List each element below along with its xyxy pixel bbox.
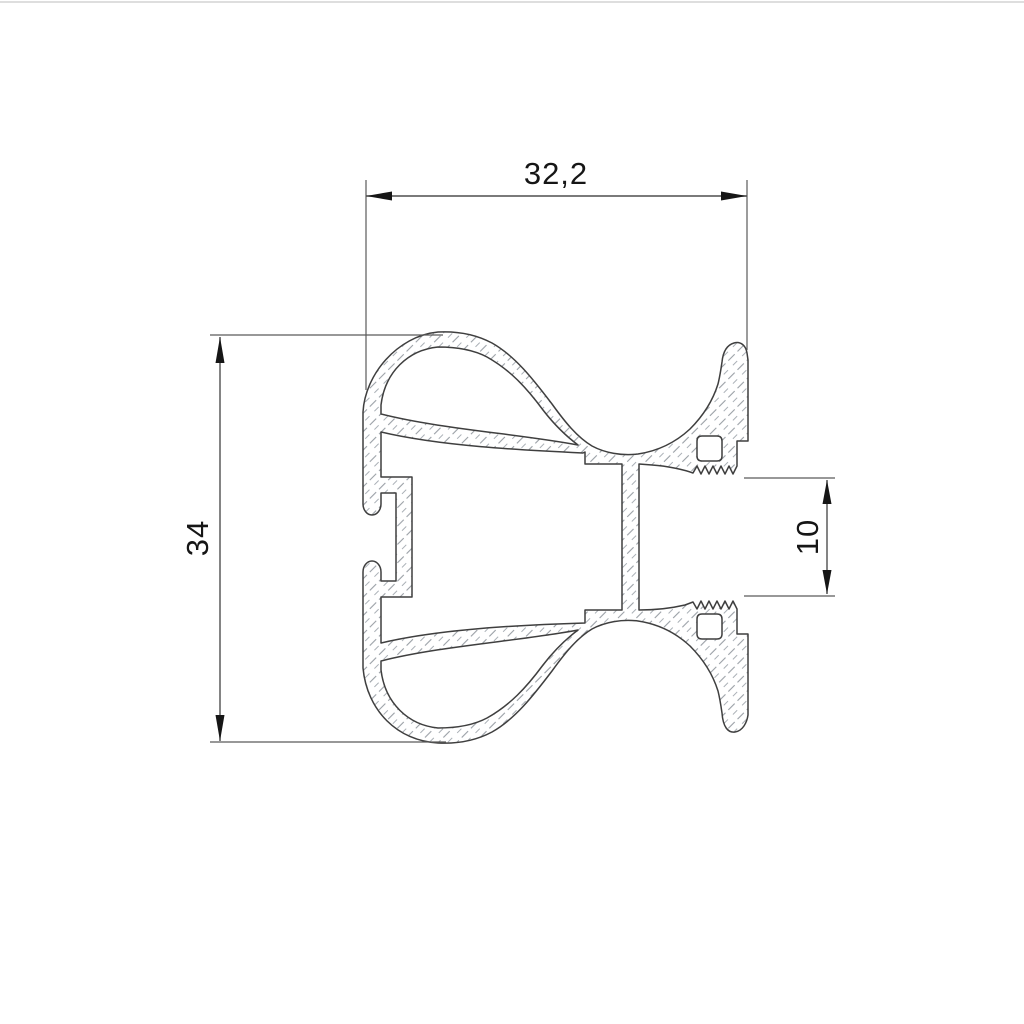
technical-drawing: 32,2 34 10 bbox=[0, 0, 1024, 1024]
dimension-label-top-width: 32,2 bbox=[524, 156, 588, 191]
background bbox=[0, 0, 1024, 1024]
dimension-label-left-height: 34 bbox=[180, 520, 215, 556]
drawing-canvas: 32,2 34 10 bbox=[0, 0, 1024, 1024]
dimension-label-right-gap: 10 bbox=[790, 519, 825, 555]
